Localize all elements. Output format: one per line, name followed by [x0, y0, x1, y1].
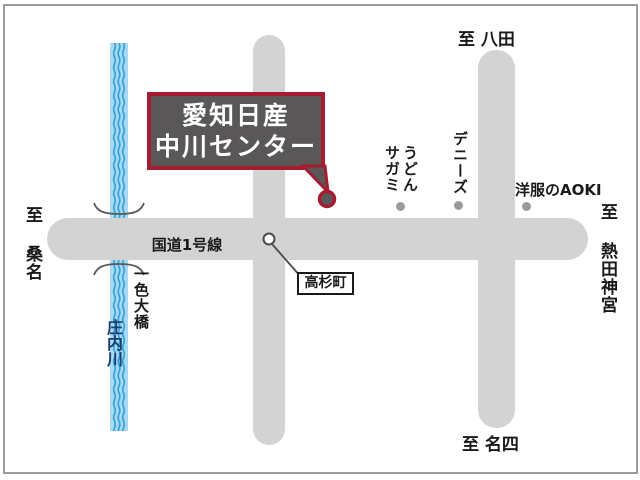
udon-sagami-line2: サガミ: [383, 145, 401, 193]
destination-callout: 愛知日産 中川センター: [147, 92, 325, 170]
aoki-dot-icon: [522, 202, 531, 211]
route1-label: 国道1号線: [140, 234, 234, 255]
isshiki-bridge-label: 一色大橋: [131, 266, 152, 330]
takasugi-label: 高杉町: [297, 272, 354, 295]
direction-kuwana: 至 桑名: [20, 206, 45, 281]
map: 国道1号線 至 八田 至 名四 至 桑名 至 熱田神宮 一色大橋 庄内川 うどん…: [0, 0, 640, 480]
udon-sagami-line1: うどん: [401, 145, 419, 193]
destination-name-line1: 愛知日産: [182, 100, 290, 131]
destination-marker-icon: [295, 160, 340, 215]
bridge-mark-north-icon: [92, 202, 146, 216]
destination-name-line2: 中川センター: [155, 131, 317, 162]
aoki-label: 洋服のAOKI: [515, 179, 602, 200]
dennys-label: デニーズ: [450, 131, 471, 195]
shonai-river-label: 庄内川: [101, 319, 125, 367]
direction-hatta: 至 八田: [458, 25, 515, 50]
udon-sagami-label: うどん サガミ: [383, 145, 419, 193]
dennys-dot-icon: [454, 201, 463, 210]
direction-atsuta-jingu: 至 熱田神宮: [595, 203, 620, 314]
road-route1: [47, 218, 588, 260]
udon-sagami-dot-icon: [396, 202, 405, 211]
direction-meishi: 至 名四: [462, 430, 519, 455]
